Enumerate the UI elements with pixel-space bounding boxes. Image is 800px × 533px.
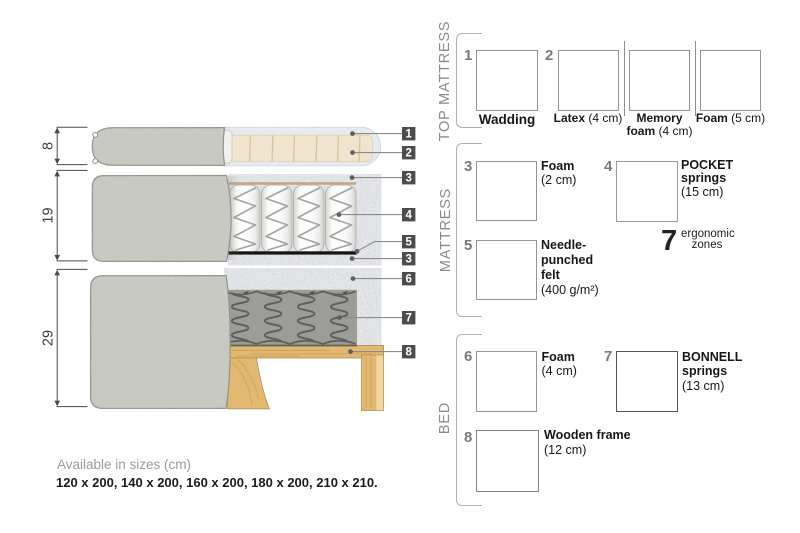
svg-text:29: 29 — [41, 330, 57, 346]
svg-text:4: 4 — [405, 209, 412, 221]
svg-text:3: 3 — [405, 253, 411, 265]
svg-text:7: 7 — [405, 312, 411, 324]
svg-text:3: 3 — [405, 172, 411, 184]
svg-text:5: 5 — [405, 236, 412, 248]
svg-text:8: 8 — [405, 346, 412, 358]
svg-text:1: 1 — [405, 128, 412, 140]
svg-text:6: 6 — [405, 273, 411, 285]
svg-text:2: 2 — [405, 147, 411, 159]
svg-text:8: 8 — [41, 142, 57, 150]
svg-text:19: 19 — [41, 207, 57, 223]
